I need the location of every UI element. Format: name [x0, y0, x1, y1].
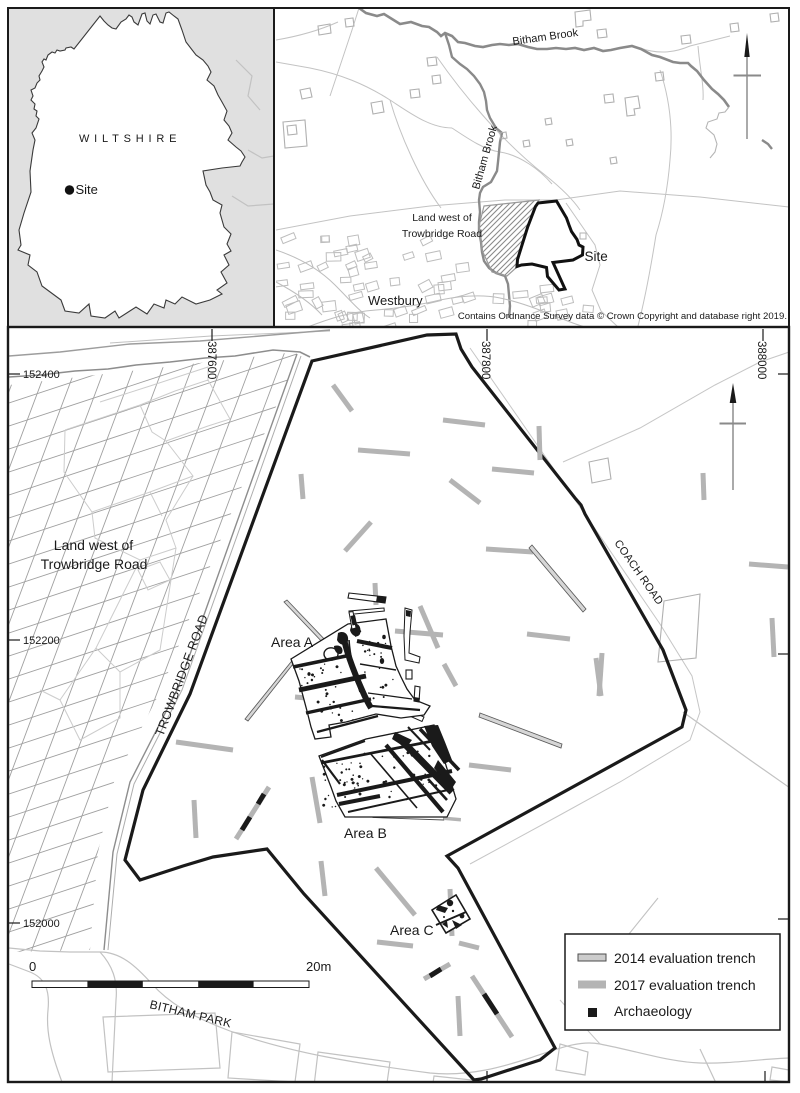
svg-text:Archaeology: Archaeology [614, 1003, 692, 1019]
svg-text:Land west of: Land west of [412, 212, 472, 224]
svg-text:0: 0 [29, 959, 36, 974]
svg-text:Contains Ordnance Survey data: Contains Ordnance Survey data © Crown Co… [458, 311, 787, 322]
svg-text:2014 evaluation trench: 2014 evaluation trench [614, 950, 756, 966]
svg-text:152400: 152400 [23, 369, 60, 381]
svg-text:387800: 387800 [479, 341, 491, 379]
svg-text:Area A: Area A [271, 634, 314, 650]
svg-text:Site: Site [585, 249, 608, 264]
svg-text:Area B: Area B [344, 825, 387, 841]
svg-text:Westbury: Westbury [368, 293, 423, 308]
svg-text:2017 evaluation trench: 2017 evaluation trench [614, 977, 756, 993]
svg-text:387600: 387600 [205, 341, 217, 379]
svg-text:Land west of: Land west of [54, 537, 133, 553]
svg-text:Trowbridge Road: Trowbridge Road [402, 228, 482, 240]
svg-text:WILTSHIRE: WILTSHIRE [79, 133, 181, 145]
svg-text:152200: 152200 [23, 635, 60, 647]
svg-text:388000: 388000 [755, 341, 767, 379]
svg-text:20m: 20m [306, 959, 331, 974]
svg-text:152000: 152000 [23, 918, 60, 930]
svg-text:Area C: Area C [390, 922, 434, 938]
svg-text:Site: Site [76, 182, 98, 197]
svg-text:Trowbridge Road: Trowbridge Road [41, 556, 148, 572]
